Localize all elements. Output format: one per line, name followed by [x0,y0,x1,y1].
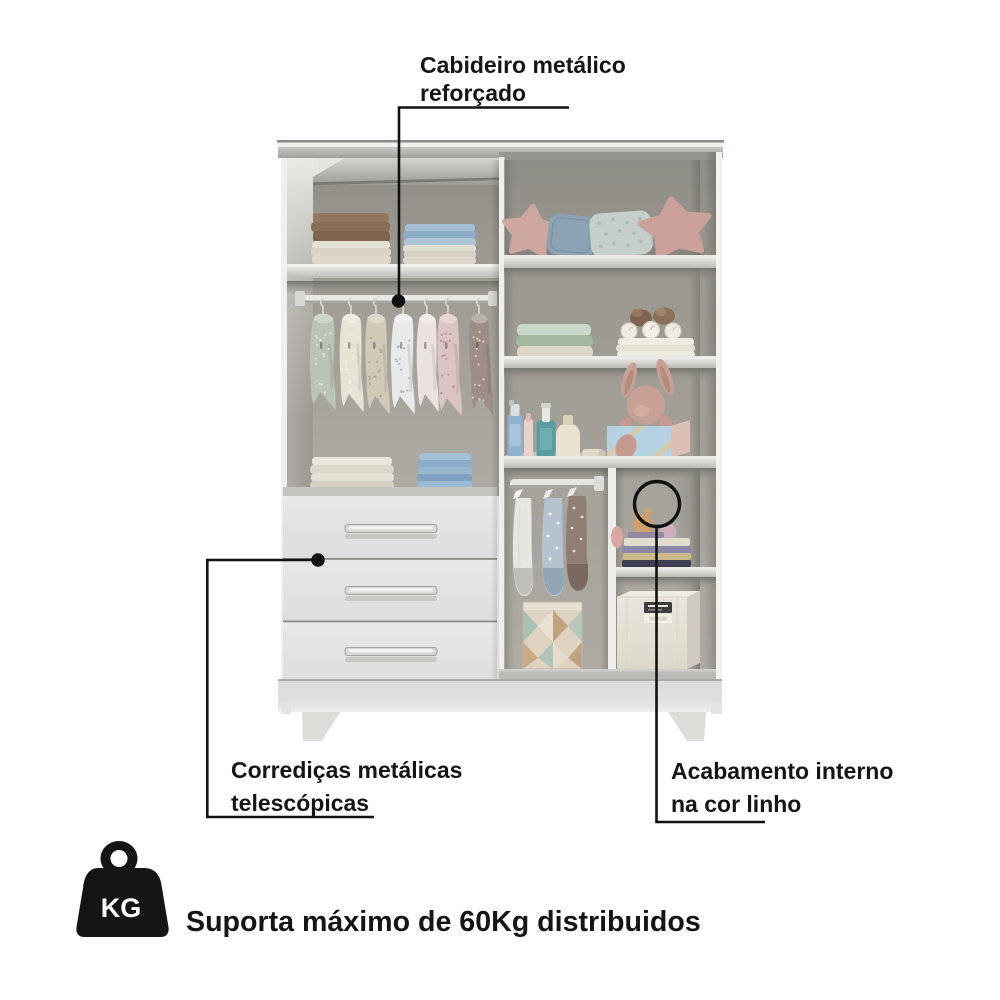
svg-text:Suporta máximo de 60Kg distrib: Suporta máximo de 60Kg distribuidos [186,906,701,938]
svg-text:Corrediças metálicas: Corrediças metálicas [231,757,462,783]
svg-text:na cor linho: na cor linho [671,791,801,817]
svg-text:Cabideiro metálico: Cabideiro metálico [420,52,626,78]
svg-text:KG: KG [101,893,142,923]
svg-text:reforçado: reforçado [420,80,526,106]
svg-text:Acabamento interno: Acabamento interno [671,758,893,784]
svg-text:telescópicas: telescópicas [231,790,369,816]
